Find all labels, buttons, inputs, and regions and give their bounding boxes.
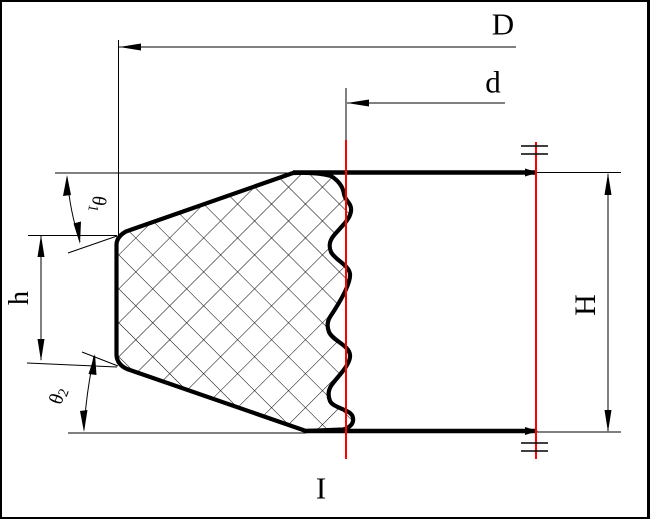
arrow-h-down [38, 339, 45, 361]
label-lip-height: h [6, 291, 34, 305]
centerlines [346, 140, 536, 459]
label-inner-diameter: d [485, 67, 501, 98]
arrow-h-up [38, 235, 45, 257]
seal-section-body [116, 173, 353, 431]
arrow-d [347, 100, 369, 107]
label-total-height: H [571, 294, 601, 316]
label-section-mark: I [316, 473, 326, 504]
section-drawing-svg [2, 2, 648, 517]
drawing-canvas: D d H h θ1 θ2 I [0, 0, 650, 519]
equal-marks [521, 146, 548, 451]
seal-outline [116, 173, 353, 431]
arrow-theta1-down [74, 222, 82, 245]
label-outer-diameter: D [492, 9, 514, 40]
arrow-theta2-down [80, 410, 88, 432]
arrow-theta1-up [63, 175, 71, 196]
arrow-D [119, 44, 141, 51]
arrow-H-up [605, 173, 612, 195]
arrow-H-down [605, 410, 612, 432]
label-angle-theta1: θ1 [85, 194, 110, 214]
